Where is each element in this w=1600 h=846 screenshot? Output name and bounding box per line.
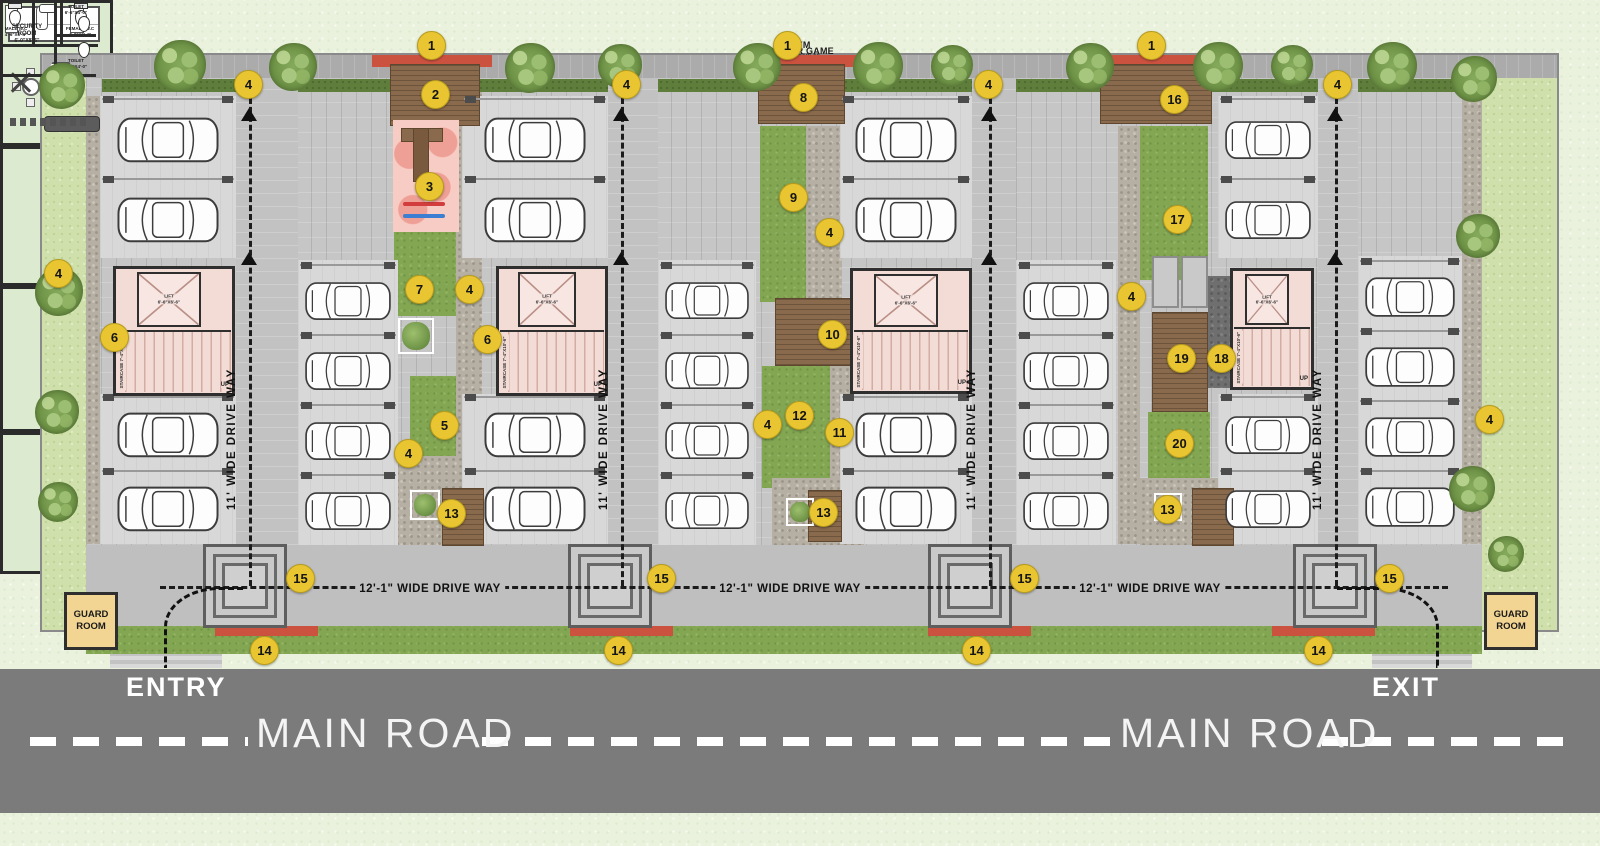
marker-6: 6 [473, 325, 502, 354]
car-icon [304, 420, 392, 462]
seesaw-icon [403, 214, 445, 218]
toilet-label: TOILET6'-6"X4'-0" [58, 4, 94, 15]
car-icon [1224, 199, 1312, 241]
marker-4: 4 [815, 218, 844, 247]
marker-6: 6 [100, 323, 129, 352]
car-icon [1364, 415, 1456, 459]
marker-1: 1 [773, 31, 802, 60]
road-center-line [482, 737, 1118, 746]
paver-pad [1152, 256, 1179, 308]
lift: LIFT6'-6"X6'-6" [874, 274, 937, 327]
marker-15: 15 [1375, 564, 1404, 593]
car-icon [1364, 275, 1456, 319]
guard-room-right: GUARD ROOM [1484, 592, 1538, 650]
marker-19: 19 [1167, 344, 1196, 373]
car-icon [483, 195, 587, 245]
marker-14: 14 [250, 636, 279, 665]
car-icon [1022, 280, 1110, 322]
lift: LIFT6'-6"X6'-6" [1245, 274, 1289, 325]
car-icon [483, 410, 587, 460]
car-icon [664, 350, 750, 391]
green-edge-left [42, 78, 86, 630]
marker-4: 4 [1475, 405, 1504, 434]
marker-11: 11 [825, 418, 854, 447]
bush-square [398, 318, 434, 354]
marker-16: 16 [1160, 85, 1189, 114]
marker-10: 10 [818, 320, 847, 349]
drive-way-label: 11' WIDE DRIVE WAY [598, 150, 618, 510]
car-icon [116, 410, 220, 460]
car-icon [1224, 119, 1312, 161]
lawn-patch [760, 126, 806, 302]
car-icon [483, 484, 587, 534]
chair-icon [26, 98, 35, 107]
toilet-icon [78, 42, 90, 58]
drive-way-dash-line [621, 98, 624, 586]
lift-staircase-core: LIFT6'-6"X6'-6"STAIRCASE 7'-4"X10'-6"UP [113, 266, 235, 396]
marker-15: 15 [647, 564, 676, 593]
pebble-path [806, 126, 842, 302]
lift: LIFT6'-6"X6'-6" [518, 272, 576, 327]
staircase: STAIRCASE 7'-4"X10'-6"UP [500, 330, 604, 392]
arrow-up-icon [1327, 108, 1343, 121]
car-icon [854, 195, 958, 245]
drive-way-label: 11' WIDE DRIVE WAY [226, 150, 246, 510]
car-icon [664, 490, 750, 531]
seesaw-icon [403, 202, 445, 206]
main-road-label: MAIN ROAD [256, 710, 515, 757]
road-center-line [30, 737, 248, 746]
car-icon [304, 280, 392, 322]
car-icon [854, 484, 958, 534]
marker-14: 14 [604, 636, 633, 665]
car-icon [664, 280, 750, 321]
marker-4: 4 [612, 70, 641, 99]
main-road: MAIN ROAD MAIN ROAD ENTRY EXIT [0, 669, 1600, 813]
drive-way-label: 11' WIDE DRIVE WAY [1312, 150, 1332, 510]
bush-square [410, 490, 440, 520]
marker-8: 8 [789, 83, 818, 112]
car-icon [1224, 414, 1312, 456]
car-icon [1022, 420, 1110, 462]
marker-15: 15 [1010, 564, 1039, 593]
exit-path-curve [1337, 587, 1439, 668]
car-icon [116, 195, 220, 245]
car-icon [116, 484, 220, 534]
marker-13: 13 [1153, 495, 1182, 524]
car-icon [1364, 485, 1456, 529]
arrow-up-icon [241, 108, 257, 121]
car-icon [304, 490, 392, 532]
up-label: UP [1300, 376, 1308, 382]
security-room-label: SECURITY ROOM6'-0"X8'-5" [2, 24, 52, 45]
arrow-up-icon [981, 108, 997, 121]
site-plan: MAIN ROAD MAIN ROAD ENTRY EXIT GUARD ROO… [0, 0, 1600, 846]
paver-pad [1181, 256, 1208, 308]
staircase: STAIRCASE 7'-4"X10'-6"UP [117, 330, 231, 392]
marker-4: 4 [1117, 282, 1146, 311]
exit-label: EXIT [1372, 672, 1440, 703]
drive-way-dash-line [989, 98, 992, 586]
bench-row-icon [10, 118, 86, 126]
drive-way-label: 12'-1" WIDE DRIVE WAY [355, 583, 505, 595]
marker-3: 3 [415, 172, 444, 201]
marker-1: 1 [417, 31, 446, 60]
lift-staircase-core: LIFT6'-6"X6'-6"STAIRCASE 7'-4"X10'-6"UP [1230, 268, 1314, 390]
marker-4: 4 [234, 70, 263, 99]
marker-4: 4 [394, 439, 423, 468]
marker-4: 4 [455, 275, 484, 304]
toilet-icon [8, 3, 22, 26]
marker-7: 7 [405, 275, 434, 304]
car-icon [854, 115, 958, 165]
marker-17: 17 [1163, 205, 1192, 234]
up-label: UP [958, 380, 966, 386]
marker-4: 4 [44, 259, 73, 288]
drive-way-label: 12'-1" WIDE DRIVE WAY [715, 583, 865, 595]
staircase: STAIRCASE 7'-4"X10'-6"UP [854, 330, 968, 390]
marker-14: 14 [962, 636, 991, 665]
car-icon [1364, 345, 1456, 389]
lift-staircase-core: LIFT6'-6"X6'-6"STAIRCASE 7'-4"X10'-6"UP [850, 268, 972, 394]
car-icon [116, 115, 220, 165]
wall [54, 34, 96, 37]
drive-way-dash-line [249, 98, 252, 586]
car-icon [854, 410, 958, 460]
marker-1: 1 [1137, 31, 1166, 60]
marker-13: 13 [809, 498, 838, 527]
drive-way-dash-line [1335, 98, 1338, 586]
marker-18: 18 [1207, 344, 1236, 373]
lift: LIFT6'-6"X6'-6" [137, 272, 200, 327]
marker-4: 4 [753, 410, 782, 439]
pebble-path [1118, 126, 1140, 544]
car-icon [1224, 488, 1312, 530]
staircase: STAIRCASE 7'-4"X10'-6"UP [1234, 327, 1310, 386]
entry-label: ENTRY [126, 672, 227, 703]
marker-9: 9 [779, 183, 808, 212]
marker-4: 4 [1323, 70, 1352, 99]
car-icon [1022, 490, 1110, 532]
marker-5: 5 [430, 411, 459, 440]
perimeter-path-left [86, 96, 100, 544]
car-icon [664, 420, 750, 461]
marker-2: 2 [421, 80, 450, 109]
marker-15: 15 [286, 564, 315, 593]
drive-way-label: 11' WIDE DRIVE WAY [966, 150, 986, 510]
lift-staircase-core: LIFT6'-6"X6'-6"STAIRCASE 7'-4"X10'-6"UP [496, 266, 608, 396]
car-icon [304, 350, 392, 392]
car-icon [1022, 350, 1110, 392]
marker-13: 13 [437, 499, 466, 528]
marker-4: 4 [974, 70, 1003, 99]
car-icon [483, 115, 587, 165]
marker-20: 20 [1165, 429, 1194, 458]
lawn-patch [394, 230, 456, 316]
marker-14: 14 [1304, 636, 1333, 665]
main-road-label: MAIN ROAD [1120, 710, 1379, 757]
drive-way-label: 12'-1" WIDE DRIVE WAY [1075, 583, 1225, 595]
toilet-icon [78, 16, 90, 32]
arrow-up-icon [613, 108, 629, 121]
guard-room-left: GUARD ROOM [64, 592, 118, 650]
marker-12: 12 [785, 401, 814, 430]
